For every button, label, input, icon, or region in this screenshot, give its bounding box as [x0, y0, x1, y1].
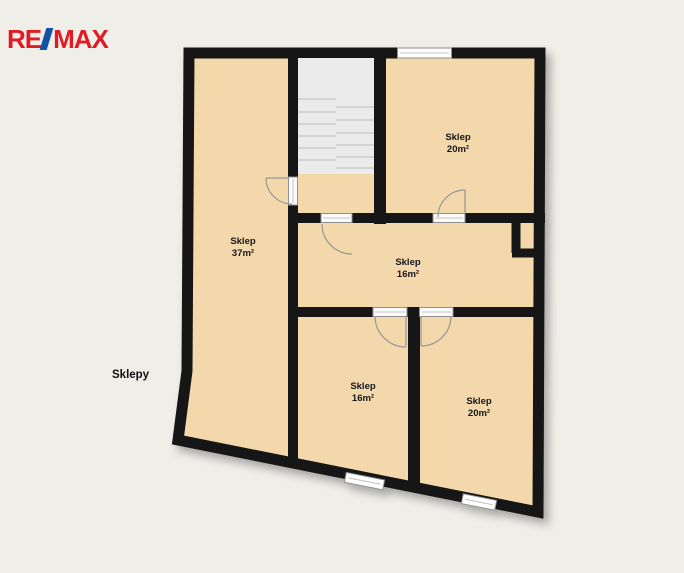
floor-plan-drawing: Sklep 37m² Sklep 20m² Sklep 16m² Sklep 1…	[0, 0, 684, 573]
room-top-right-area: 20m²	[447, 144, 469, 155]
room-middle-name: Sklep	[395, 257, 421, 268]
room-left-area: 37m²	[232, 248, 254, 259]
staircase	[298, 58, 375, 174]
window-top	[398, 48, 452, 58]
room-bottom-right-name: Sklep	[466, 396, 492, 407]
building: Sklep 37m² Sklep 20m² Sklep 16m² Sklep 1…	[178, 48, 545, 512]
room-bottom-right-area: 20m²	[468, 408, 490, 419]
room-middle-area: 16m²	[397, 269, 419, 280]
room-top-right-name: Sklep	[445, 132, 471, 143]
room-left-name: Sklep	[230, 236, 256, 247]
room-bottom-middle-name: Sklep	[350, 381, 376, 392]
floor-plan-page: RE MAX Sklepy	[0, 0, 684, 573]
room-bottom-middle-area: 16m²	[352, 393, 374, 404]
